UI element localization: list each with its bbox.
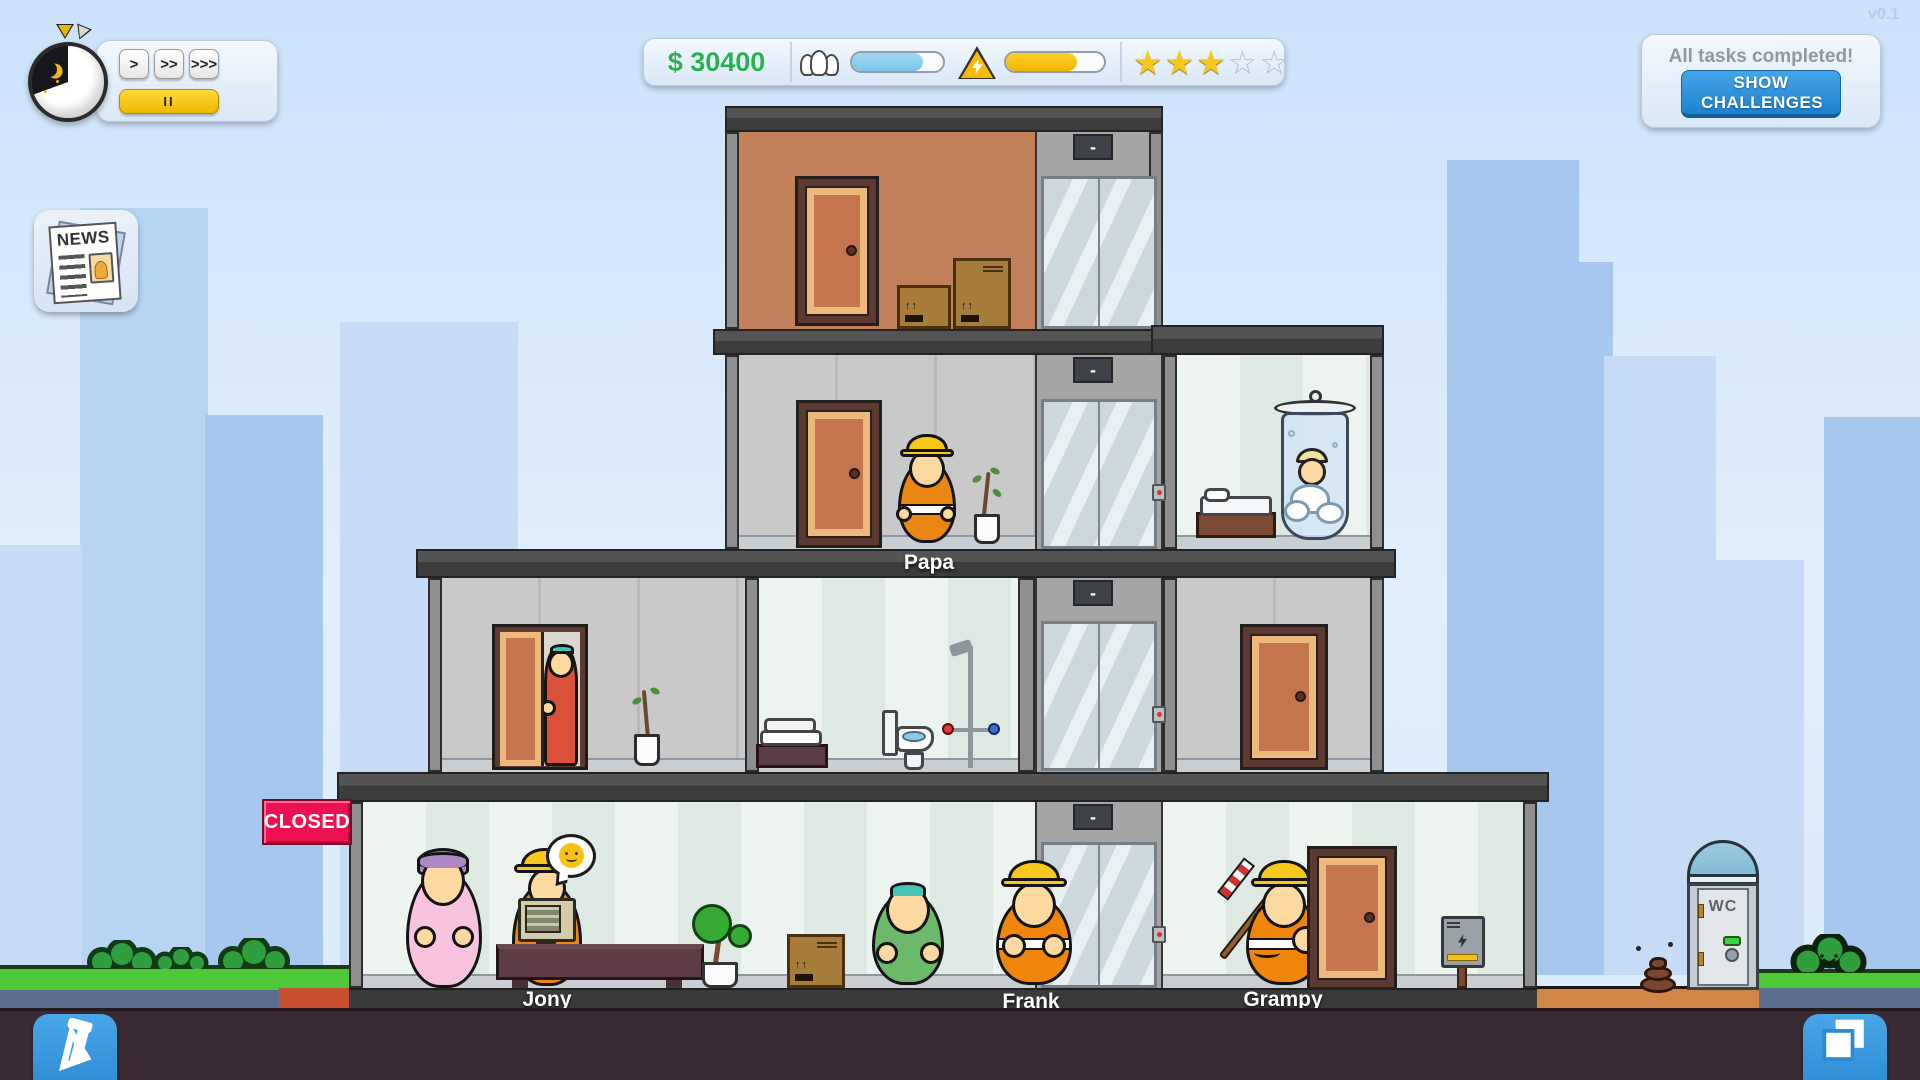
ground-right [1757,988,1920,1010]
character-frank[interactable] [990,856,1078,988]
version-label: v0.1 [1868,6,1899,24]
population-icon [800,50,844,78]
character-visitor-green[interactable] [868,880,948,988]
hard-hat-icon [1001,878,1067,887]
speed-3x-button[interactable]: >>> [189,49,219,79]
bed[interactable] [1196,488,1278,540]
elevator-display: - [1073,804,1113,830]
energy-bar-fill [1006,53,1077,71]
elevator-display: - [1073,357,1113,383]
character-visitor-pink[interactable] [404,846,486,988]
floor2-floor [442,758,745,772]
pause-button[interactable]: II [119,89,219,114]
door-knob-icon [1364,912,1375,923]
population-bar-fill [852,53,923,71]
wc-label: WC [1697,898,1749,916]
closed-sign[interactable]: CLOSED [262,799,352,845]
potted-plant[interactable] [690,902,756,988]
door-knob-icon [849,468,860,479]
floor2-left-room [442,578,745,772]
wc-outhouse[interactable]: WC [1687,840,1759,990]
day-night-clock-icon[interactable] [28,42,108,122]
floor3-roof [713,329,1175,355]
toilet[interactable] [882,710,938,770]
skyline-building [0,545,82,975]
jar-person-face [1298,458,1326,486]
character-papa[interactable] [890,432,970,549]
door-knob-icon [846,245,857,256]
skyline-building [205,415,323,975]
speed-2x-button[interactable]: >> [154,49,184,79]
poop-icon[interactable] [1636,942,1680,992]
game-stage: WC ↑↑ ↑↑ - - [0,0,1920,1080]
floor2-wall-left [428,578,442,772]
copy-icon [1803,1014,1887,1076]
cloning-jar[interactable] [1274,390,1358,542]
floor4-roof [725,106,1163,132]
wc-knob [1725,948,1739,962]
door-panel [500,632,544,766]
hard-hat-icon [900,449,954,457]
wc-vacancy-indicator [1723,936,1741,946]
closed-sign-label: CLOSED [264,811,350,834]
peeking-person-face [548,650,574,678]
cold-knob-icon [988,723,1000,735]
floor1-roof [337,772,1549,802]
energy-bar [1004,51,1106,73]
bush-icon [214,938,294,968]
tasks-status: All tasks completed! [1641,46,1881,68]
wc-hinge [1698,952,1704,966]
smiley-bush-icon [1786,934,1872,972]
floor3-wall-left [725,355,739,549]
floor4-door[interactable] [795,176,879,326]
elevator-display: - [1073,580,1113,606]
floor1-wall-right [1523,802,1537,988]
cardboard-box[interactable]: ↑↑ [953,258,1011,329]
skyline-building [1824,417,1920,975]
skyline-building [80,208,208,975]
floor3-door[interactable] [796,400,882,548]
floor2-wall-right [1370,578,1384,772]
floor4-wall-left [725,132,739,329]
energy-icon [958,46,998,80]
newspaper-icon: NEWS [48,222,121,305]
entrance-path [279,988,349,1008]
floor3-wall-right [1370,355,1384,549]
floor2-wall-mid [1163,578,1177,772]
tools-icon [33,1014,117,1076]
show-challenges-label: SHOW CHALLENGES [1701,73,1821,112]
electric-meter[interactable] [1441,916,1491,990]
floor2-open-door[interactable] [492,624,588,770]
cardboard-box[interactable]: ↑↑ [897,285,951,329]
elevator-doors[interactable] [1041,399,1157,549]
construction-menu-button[interactable] [33,1014,117,1080]
peeking-person-hair [550,644,574,654]
time-marker-icon [58,25,72,37]
shower[interactable] [942,642,1002,770]
population-bar [850,51,945,73]
star-rating: ★★★☆☆ [1133,42,1283,86]
floor3-wall-mid [1163,355,1177,549]
computer-monitor [518,898,580,950]
news-photo [88,252,114,284]
elevator-doors[interactable] [1041,621,1157,771]
bush-icon [84,940,160,968]
news-button[interactable]: NEWS [34,210,138,312]
reception-desk[interactable] [496,944,708,988]
floor2-wall [1018,578,1035,772]
cardboard-box[interactable]: ↑↑ [787,934,845,988]
door-knob-icon [1295,691,1306,702]
floor2-door[interactable] [1240,624,1328,770]
hair-icon [890,882,926,896]
rooms-menu-button[interactable] [1803,1014,1887,1080]
bush-icon [150,947,212,969]
bottom-toolbar [0,1008,1920,1080]
speech-bubble [546,834,600,886]
elevator-call-button[interactable] [1152,484,1166,501]
hot-knob-icon [942,723,954,735]
grass-right [1757,969,1920,990]
show-challenges-button[interactable]: SHOW CHALLENGES [1681,70,1841,118]
plant[interactable] [624,688,668,768]
elevator-call-button[interactable] [1152,706,1166,723]
towel-shelf[interactable] [756,716,832,770]
plant[interactable] [962,468,1006,546]
elevator-doors[interactable] [1041,176,1157,329]
lobby-door[interactable] [1307,846,1397,990]
character-name-label: Papa [889,551,969,575]
news-masthead: NEWS [51,227,116,251]
star-filled-icon: ★★★ [1133,44,1228,81]
star-empty-icon: ☆☆ [1228,44,1291,81]
wc-hinge [1698,904,1704,918]
elevator-call-button[interactable] [1152,926,1166,943]
speed-1x-button[interactable]: > [119,49,149,79]
elevator-display: - [1073,134,1113,160]
floor3-annex-roof [1151,325,1384,355]
money-value: $ 30400 [643,38,790,86]
